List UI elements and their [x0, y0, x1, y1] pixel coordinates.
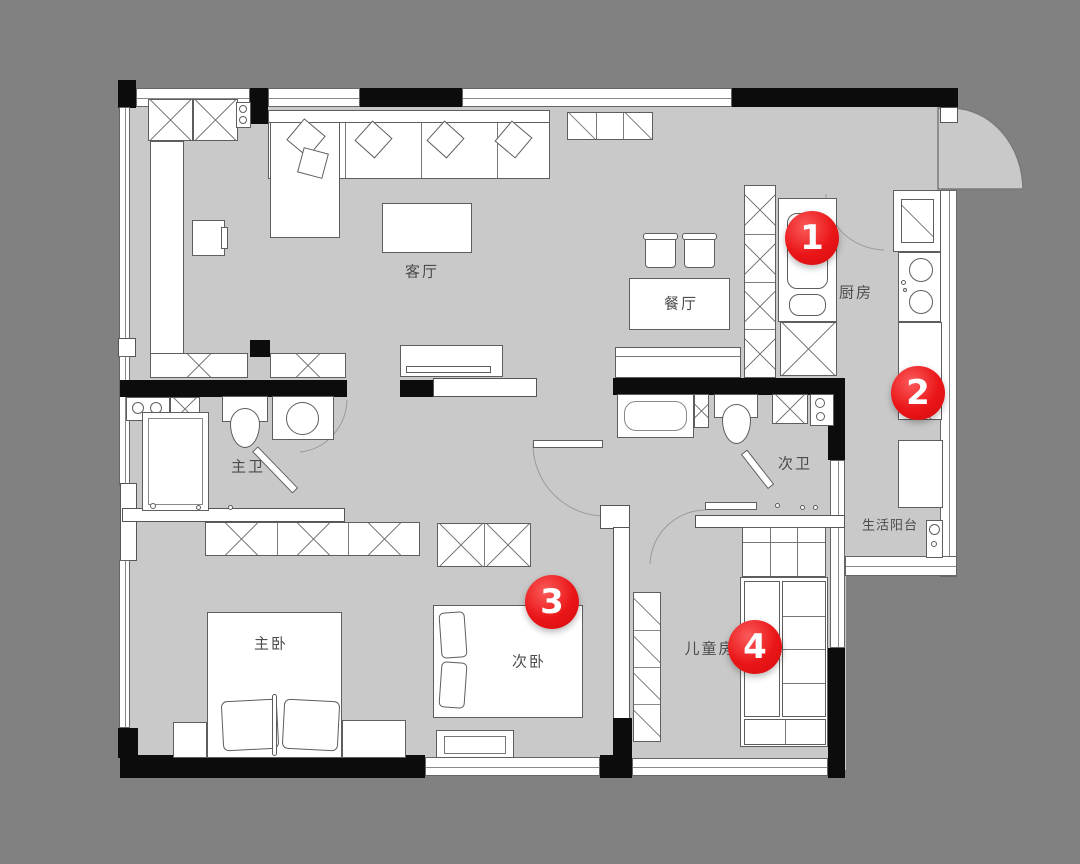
kids-bed-shelves: [782, 581, 826, 717]
wall-left-pillar-a: [118, 338, 136, 357]
tv-set: [406, 366, 491, 373]
room-label-kitchen: 厨房: [839, 282, 873, 303]
sbath-niche: [694, 394, 709, 428]
mbath-shower: [142, 412, 209, 511]
hob-dot-1: [239, 105, 247, 113]
mbath-tap-2: [196, 505, 201, 510]
mbed-bench-right: [342, 720, 406, 758]
wall-vert-bedrooms: [613, 527, 630, 722]
coffee-table: [382, 203, 472, 253]
kids-bed-drawers: [744, 719, 826, 745]
dining-sideboard: [615, 347, 741, 378]
marker-1[interactable]: 1: [785, 211, 839, 265]
balcony-counter: [898, 440, 943, 508]
sbath-basin-dot2: [816, 412, 825, 421]
dining-chair-1-back: [643, 233, 678, 240]
cabinet-top-left-2: [193, 99, 238, 141]
wall-vert-bedrooms-cap: [613, 718, 632, 758]
wall-right-lower: [828, 648, 845, 778]
wall-mid-h2: [400, 380, 433, 397]
wall-mid-h3: [613, 378, 845, 395]
kids-wardrobe: [742, 527, 826, 577]
wall-top-b: [360, 88, 462, 107]
mbed-center-line: [272, 694, 277, 756]
mbath-tap-1: [150, 503, 156, 509]
kids-shelf-column: [633, 592, 661, 742]
room-label-service-balcony: 生活阳台: [862, 515, 918, 534]
wall-top-c: [732, 88, 958, 107]
hall-door-leaf: [533, 440, 603, 448]
mbed-pillow-right: [282, 699, 341, 752]
wall-living-chunk: [250, 340, 270, 357]
stove-knob-1: [901, 280, 906, 285]
kids-door-leaf: [705, 502, 757, 510]
wall-mid-h1: [120, 380, 347, 397]
wall-bottom-1: [120, 755, 425, 778]
window-top-2: [268, 88, 360, 107]
window-left-3: [119, 560, 130, 728]
mbath-tap-3: [228, 505, 233, 510]
side-cabinet-long: [150, 141, 184, 355]
dining-chair-1: [645, 237, 676, 268]
stove-burner-2: [909, 290, 933, 314]
wall-left-pillar-b: [120, 483, 137, 561]
stove-knob-2: [903, 288, 907, 292]
room-label-second-bedroom: 次卧: [512, 651, 546, 672]
cabinet-top-left: [148, 99, 193, 141]
washing-machine-knob: [931, 541, 937, 547]
window-right-kids: [830, 460, 845, 648]
window-bottom-2: [632, 758, 828, 776]
wall-mid-white: [433, 378, 537, 397]
sbath-tap-1: [775, 503, 780, 508]
window-top-3: [462, 88, 732, 107]
sbed-pillow-1: [438, 611, 467, 659]
marker-4[interactable]: 4: [728, 620, 782, 674]
wall-balcony-bottom: [845, 556, 957, 576]
sbath-cabinet: [772, 394, 808, 424]
stove-burner-1: [909, 258, 933, 282]
kitchen-sink: [901, 199, 934, 243]
room-label-second-bath: 次卫: [778, 453, 812, 474]
floor-plan: 客厅 餐厅 厨房 主卫 次卫 生活阳台 主卧 次卧 儿童房 1 2 3 4: [0, 0, 1080, 864]
room-label-dining-room: 餐厅: [664, 293, 698, 314]
window-left-2: [119, 356, 130, 486]
kitchen-cabinet-low: [780, 322, 837, 376]
mbath-basin: [286, 402, 319, 435]
wall-top-corner: [118, 80, 136, 108]
cabinet-tv-wall-2: [270, 353, 346, 378]
sbed-wardrobe: [437, 523, 531, 567]
room-label-living-room: 客厅: [405, 261, 439, 282]
sbath-basin-dot1: [815, 398, 825, 408]
entry-door-leaf: [940, 107, 958, 123]
sbath-tub: [617, 394, 694, 438]
mbed-pillow-left: [221, 699, 280, 752]
side-table-tray: [221, 227, 228, 249]
room-label-master-bedroom: 主卧: [254, 633, 288, 654]
dining-chair-2: [684, 237, 715, 268]
sbed-desk: [436, 730, 514, 758]
marker-2[interactable]: 2: [891, 366, 945, 420]
wall-hall-junction: [600, 505, 630, 529]
window-bottom-1: [425, 757, 600, 776]
washing-machine-door: [929, 524, 940, 535]
mbed-wardrobe: [205, 522, 420, 556]
sbath-tap-3: [813, 505, 818, 510]
cabinet-tv-wall-1: [150, 353, 248, 378]
hob-dot-2: [239, 116, 247, 124]
kitchen-tall-cabinet: [744, 185, 776, 378]
marker-3[interactable]: 3: [525, 575, 579, 629]
sbed-pillow-2: [438, 661, 467, 709]
sideboard-top: [567, 112, 653, 140]
window-left-1: [119, 107, 130, 360]
fridge-drawer: [789, 294, 826, 316]
room-label-master-bath: 主卫: [231, 456, 265, 477]
wall-bottom-2: [600, 755, 632, 778]
dining-chair-2-back: [682, 233, 717, 240]
wall-top-a: [250, 88, 268, 124]
wall-left-bottom: [118, 728, 138, 758]
sbath-tap-2: [800, 505, 805, 510]
mbed-nightstand-left: [173, 722, 207, 758]
